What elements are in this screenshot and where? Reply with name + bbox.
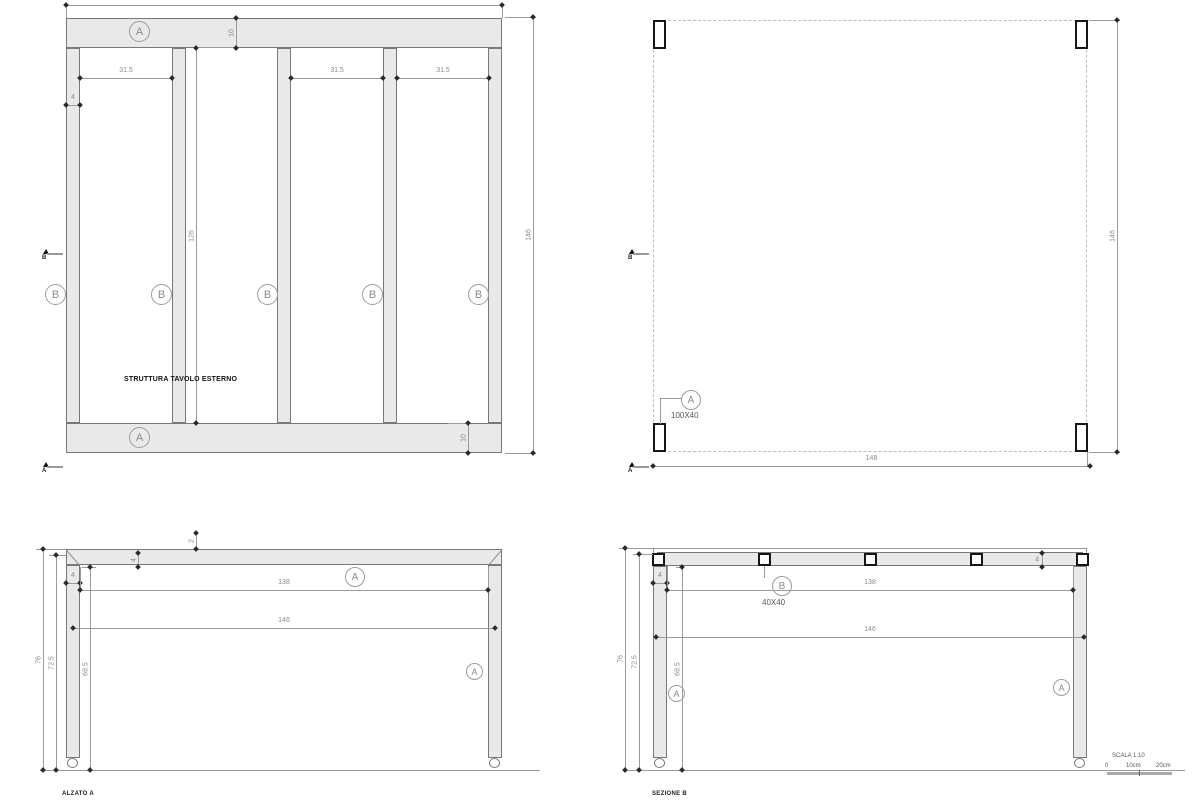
section-line	[47, 466, 63, 468]
leg-foot	[489, 758, 500, 768]
dim-label: 4	[658, 572, 662, 579]
dim-label: 76	[618, 655, 625, 663]
dim-inner-width: 138	[80, 590, 488, 591]
label-batten-b: B	[45, 284, 66, 305]
drawing-title: STRUTTURA TAVOLO ESTERNO	[124, 376, 237, 383]
section-marker-b: B	[42, 249, 66, 265]
label-text: A	[1058, 683, 1064, 693]
dim-label: 10	[461, 434, 468, 442]
dim-label: 146	[864, 626, 876, 633]
label-top-a: A	[345, 567, 365, 587]
dim-total-height: 76	[43, 549, 44, 770]
view-caption: ALZATO A	[62, 791, 94, 797]
leader-line	[660, 398, 682, 399]
dim-bay-1: 31.5	[80, 78, 172, 79]
leg-size-label: 100X40	[671, 411, 699, 420]
dim-label: 146	[526, 229, 533, 241]
section-letter: A	[42, 468, 46, 474]
leader-line	[660, 398, 661, 424]
batten	[277, 48, 291, 423]
scale-tick-10: 10cm	[1126, 763, 1141, 769]
batten-size-label: 40X40	[762, 598, 785, 607]
view-caption: SEZIONE B	[652, 791, 687, 797]
section-marker-b: B	[628, 249, 652, 265]
dim-leg-width: 4	[653, 583, 667, 584]
dim-label: 138	[864, 579, 876, 586]
label-batten-b: B	[468, 284, 489, 305]
leg	[1073, 566, 1087, 758]
dim-label: 10	[229, 29, 236, 37]
scale-tick-20: 20cm	[1156, 763, 1171, 769]
tabletop-outline	[653, 20, 1087, 452]
leg-foot	[1074, 758, 1085, 768]
dim-leg-width: 4	[66, 583, 80, 584]
leader-line	[764, 566, 765, 578]
dim-label: 148	[278, 0, 290, 1]
dim-clear-depth: 126	[196, 48, 197, 423]
dim-batten-height: 4	[1042, 553, 1043, 567]
dim-clear-height: 68.5	[682, 567, 683, 770]
batten-section	[758, 553, 771, 566]
label-leg-a: A	[681, 390, 701, 410]
scale-tick-0: 0	[1105, 763, 1108, 769]
batten	[383, 48, 397, 423]
technical-drawing-sheet: 148 10 31.5 31.5 31.5 4 126 146	[0, 0, 1200, 800]
batten	[172, 48, 186, 423]
dim-overall-width: 148	[653, 466, 1090, 467]
leg-plan	[1075, 423, 1088, 452]
dim-label: 76	[36, 656, 43, 664]
label-batten-b: B	[362, 284, 383, 305]
view-plan-top: A 100X40 146 148 B A	[600, 0, 1200, 520]
leg-foot	[67, 758, 78, 768]
label-batten-b: B	[772, 576, 792, 596]
scale-label: SCALA 1:10	[1112, 753, 1145, 759]
view-elevation-a: 2 4 4 138 146 76 72.5 68.5	[0, 520, 600, 800]
dim-leg-height: 72.5	[639, 554, 640, 770]
label-text: B	[158, 289, 165, 301]
dim-clear-height: 68.5	[90, 567, 91, 770]
dim-batten-width: 4	[66, 105, 80, 106]
ground-line	[625, 770, 1185, 771]
dim-label: 4	[71, 94, 75, 101]
dim-label: 72.5	[49, 656, 56, 670]
dim-label: 4	[71, 572, 75, 579]
label-text: B	[264, 289, 271, 301]
section-letter: A	[628, 468, 632, 474]
batten	[488, 48, 502, 423]
label-rail-a-bottom: A	[129, 427, 150, 448]
leg-plan	[653, 20, 666, 49]
label-text: A	[471, 667, 477, 677]
dim-rail-top-height: 10	[236, 18, 237, 48]
dim-overall-depth: 146	[1117, 20, 1118, 452]
dim-label: 31.5	[436, 67, 450, 74]
dim-label: 4	[131, 558, 138, 562]
leg	[653, 566, 667, 758]
leg-plan	[1075, 20, 1088, 49]
dim-label: 2	[189, 539, 196, 543]
dim-overall-width: 148	[66, 5, 502, 6]
section-line	[633, 253, 649, 255]
leg	[488, 565, 502, 758]
label-rail-a-top: A	[129, 21, 150, 42]
label-text: A	[136, 432, 143, 444]
dim-label: 146	[1110, 230, 1117, 242]
label-text: A	[673, 689, 679, 699]
label-batten-b: B	[151, 284, 172, 305]
label-text: A	[136, 26, 143, 38]
label-leg-a: A	[668, 685, 685, 702]
dim-top-thickness: 2	[196, 533, 197, 549]
label-text: B	[475, 289, 482, 301]
section-marker-a: A	[628, 462, 652, 478]
label-batten-b: B	[257, 284, 278, 305]
ground-line	[40, 770, 540, 771]
batten-section	[970, 553, 983, 566]
section-line	[47, 253, 63, 255]
view-section-b: B 40X40 4 4 138 146 76 72.5 68.5	[600, 520, 1200, 800]
dim-label: 68.5	[675, 662, 682, 676]
dim-batten-height: 4	[138, 553, 139, 567]
extension-line	[196, 47, 236, 48]
dim-overall-depth: 146	[533, 17, 534, 453]
dim-label: 126	[189, 230, 196, 242]
dim-bay-2: 31.5	[291, 78, 383, 79]
section-letter: B	[628, 255, 632, 261]
dim-label: 146	[278, 617, 290, 624]
label-text: B	[369, 289, 376, 301]
dim-label: 31.5	[119, 67, 133, 74]
dim-total-height: 76	[625, 548, 626, 770]
leg-plan	[653, 423, 666, 452]
batten-section	[652, 553, 665, 566]
batten-section	[864, 553, 877, 566]
dim-label: 72.5	[632, 655, 639, 669]
scale-bar-tick	[1139, 770, 1140, 776]
label-leg-a: A	[466, 663, 483, 680]
view-plan-frame: 148 10 31.5 31.5 31.5 4 126 146	[0, 0, 600, 520]
dim-inner-width: 138	[667, 590, 1073, 591]
label-text: B	[52, 289, 59, 301]
leg	[66, 565, 80, 758]
dim-label: 148	[866, 455, 878, 462]
dim-rail-bottom-height: 10	[468, 423, 469, 453]
dim-outer-width: 146	[656, 637, 1084, 638]
dim-label: 31.5	[330, 67, 344, 74]
dim-outer-width: 146	[73, 628, 495, 629]
dim-bay-3: 31.5	[397, 78, 489, 79]
section-marker-a: A	[42, 462, 66, 478]
label-text: A	[688, 395, 695, 406]
batten-section	[1076, 553, 1089, 566]
dim-leg-height: 72.5	[56, 555, 57, 770]
section-line	[633, 466, 649, 468]
label-text: A	[352, 572, 359, 583]
dim-label: 4	[1035, 557, 1039, 564]
section-letter: B	[42, 255, 46, 261]
leg-foot	[654, 758, 665, 768]
label-leg-a: A	[1053, 679, 1070, 696]
dim-label: 138	[278, 579, 290, 586]
dim-label: 68.5	[83, 662, 90, 676]
